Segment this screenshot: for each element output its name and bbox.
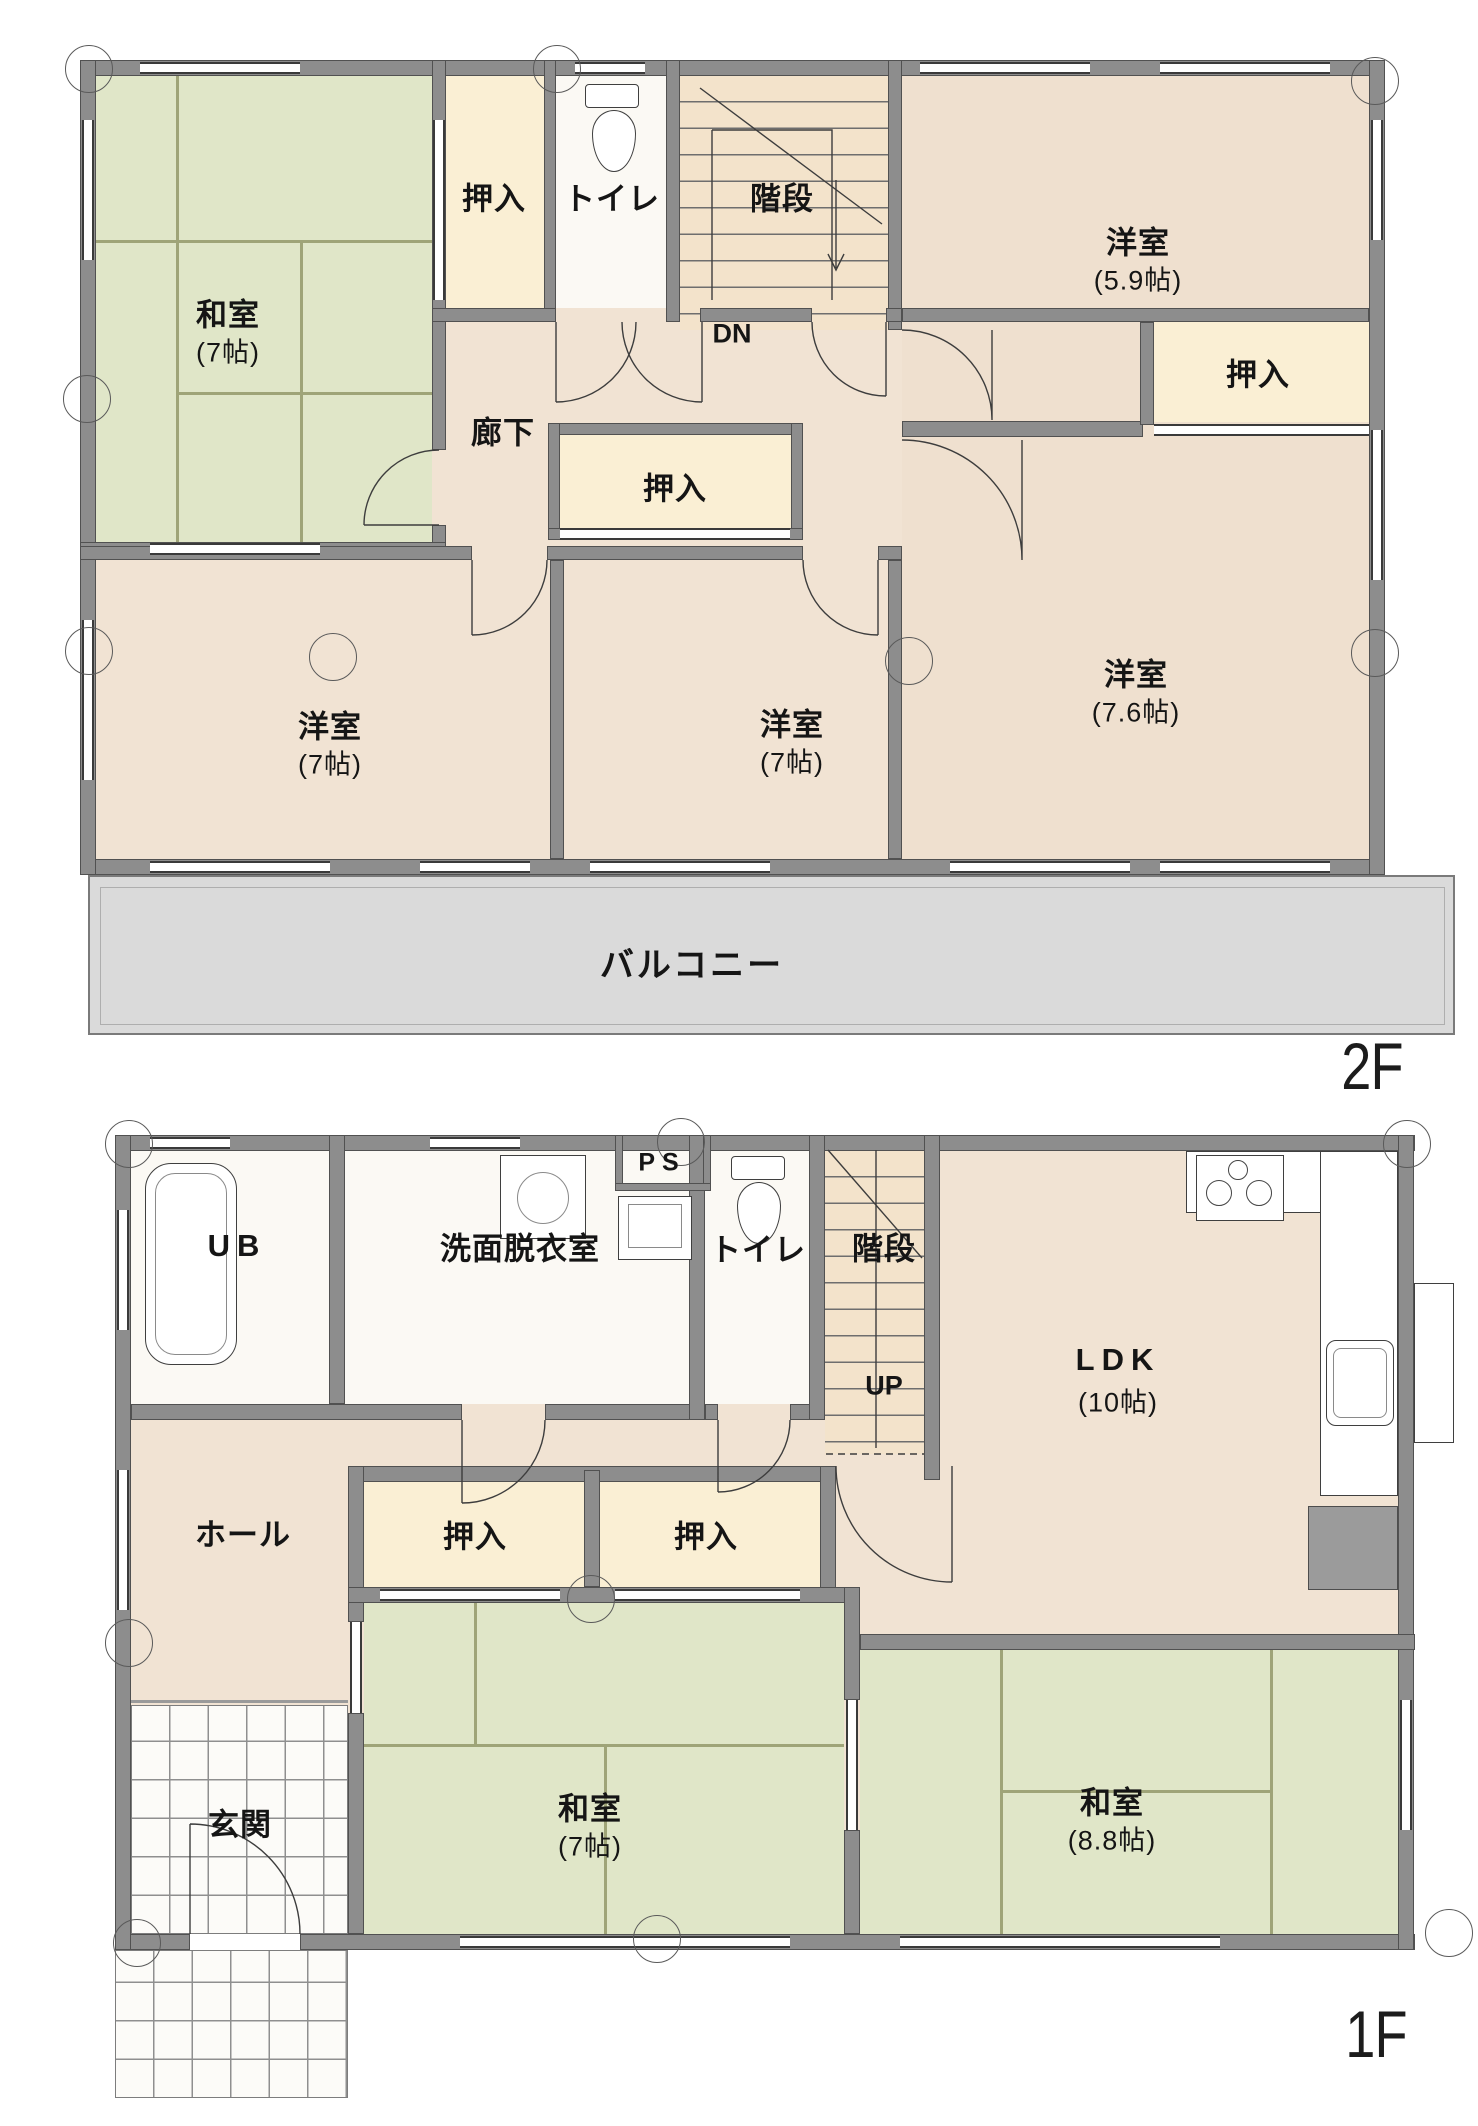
wall-segment bbox=[329, 1135, 345, 1404]
room-label-oshiire-top-2f: 押入 bbox=[462, 174, 526, 219]
corner-mark bbox=[65, 627, 113, 675]
toilet-icon bbox=[585, 84, 639, 108]
corner-mark bbox=[633, 1915, 681, 1963]
room-size-yoshitsu7a-2f: (7帖) bbox=[298, 743, 362, 782]
room-size-washitsu7-1f: (7帖) bbox=[558, 1825, 622, 1864]
window-marker bbox=[920, 62, 1090, 74]
wall-segment bbox=[544, 60, 556, 322]
room-label-yoshitsu7a-2f: 洋室 bbox=[298, 702, 362, 747]
wall-segment bbox=[1140, 322, 1154, 425]
wall-segment bbox=[348, 1713, 364, 1934]
corner-mark bbox=[1351, 629, 1399, 677]
room-label-yoshitsu76-2f: 洋室 bbox=[1104, 650, 1168, 695]
window-marker bbox=[150, 1137, 230, 1149]
window-marker bbox=[1400, 1700, 1412, 1830]
room-stairs-1f bbox=[825, 1151, 924, 1454]
window-marker bbox=[590, 861, 770, 873]
floor-tag-2f: 2F bbox=[1341, 1028, 1403, 1104]
corner-mark bbox=[885, 637, 933, 685]
window-marker bbox=[117, 1470, 129, 1610]
room-label-yoshitsu7b-2f: 洋室 bbox=[760, 700, 824, 745]
genkan-step-line bbox=[131, 1700, 348, 1703]
bathtub-inner bbox=[155, 1173, 227, 1355]
room-washitsu7-2f bbox=[96, 76, 432, 542]
window-marker bbox=[1371, 120, 1383, 240]
wall-segment bbox=[548, 423, 560, 540]
wall-segment bbox=[115, 1135, 1415, 1151]
window-marker bbox=[460, 1936, 790, 1948]
wall-segment bbox=[809, 1135, 825, 1420]
room-label-ldk-1f: LDK bbox=[1076, 1342, 1161, 1378]
tatami-line bbox=[176, 392, 432, 395]
room-size-yoshitsu59-2f: (5.9帖) bbox=[1094, 259, 1183, 298]
room-size-yoshitsu76-2f: (7.6帖) bbox=[1092, 691, 1181, 730]
window-marker bbox=[117, 1210, 129, 1330]
sliding-door-marker bbox=[150, 543, 320, 555]
kitchen-counter bbox=[1320, 1151, 1398, 1496]
tatami-line bbox=[176, 76, 179, 542]
wall-segment bbox=[547, 546, 803, 560]
balcony-label: バルコニー bbox=[600, 938, 784, 987]
corner-mark bbox=[65, 45, 113, 93]
stairs-direction-1f: UP bbox=[865, 1371, 903, 1402]
wall-segment bbox=[131, 1404, 462, 1420]
corner-mark bbox=[105, 1120, 153, 1168]
kitchen-sink-inner bbox=[1333, 1348, 1387, 1418]
corner-mark bbox=[533, 45, 581, 93]
tatami-line bbox=[96, 240, 432, 243]
wall-segment bbox=[844, 1830, 860, 1934]
corner-mark bbox=[309, 633, 357, 681]
room-size-yoshitsu7b-2f: (7帖) bbox=[760, 741, 824, 780]
floorplan-canvas: 和室 (7帖) 押入 トイレ 階段 DN 廊下 押入 洋室 (5.9帖) 押入 … bbox=[0, 0, 1478, 2126]
room-label-oshiire-right-1f: 押入 bbox=[674, 1512, 738, 1557]
window-marker bbox=[430, 1137, 520, 1149]
room-label-genkan-1f: 玄関 bbox=[208, 1800, 272, 1845]
corner-mark bbox=[63, 375, 111, 423]
room-label-washitsu88-1f: 和室 bbox=[1080, 1778, 1144, 1823]
wall-segment bbox=[902, 308, 1369, 322]
wall-segment bbox=[888, 560, 902, 859]
washer-drum bbox=[517, 1172, 569, 1224]
window-marker bbox=[950, 861, 1130, 873]
sliding-door-marker bbox=[380, 1589, 560, 1601]
window-marker bbox=[1371, 430, 1383, 580]
sliding-door-marker bbox=[1154, 424, 1369, 436]
window-marker bbox=[140, 62, 300, 74]
wall-segment bbox=[545, 1404, 705, 1420]
wall-segment bbox=[860, 1634, 1415, 1650]
sliding-door-marker bbox=[846, 1700, 858, 1830]
stove-burner bbox=[1228, 1160, 1248, 1180]
tatami-line bbox=[300, 240, 303, 542]
window-marker bbox=[150, 861, 330, 873]
room-label-senmen-1f: 洗面脱衣室 bbox=[440, 1224, 600, 1269]
stairs-direction-2f: DN bbox=[713, 319, 752, 350]
bay-window bbox=[1414, 1283, 1454, 1443]
wall-segment bbox=[924, 1135, 940, 1480]
tatami-line bbox=[474, 1603, 477, 1744]
room-label-oshiire-mid-2f: 押入 bbox=[643, 464, 707, 509]
corner-mark bbox=[105, 1619, 153, 1667]
room-label-ub-1f: UB bbox=[208, 1228, 267, 1264]
room-label-washitsu7-1f: 和室 bbox=[558, 1784, 622, 1829]
wall-segment bbox=[584, 1470, 600, 1587]
window-marker bbox=[420, 861, 530, 873]
wall-segment bbox=[844, 1587, 860, 1700]
room-label-oshiire-right-2f: 押入 bbox=[1226, 350, 1290, 395]
room-size-ldk-1f: (10帖) bbox=[1078, 1381, 1158, 1420]
toilet-icon bbox=[731, 1156, 785, 1180]
window-marker bbox=[1160, 861, 1330, 873]
stove-burner bbox=[1246, 1180, 1272, 1206]
stove-burner bbox=[1206, 1180, 1232, 1206]
wall-segment bbox=[878, 546, 902, 560]
sliding-door-marker bbox=[350, 1622, 362, 1713]
room-label-hall-1f: ホール bbox=[195, 1510, 291, 1555]
window-marker bbox=[575, 62, 645, 74]
wall-segment bbox=[705, 1404, 718, 1420]
wall-segment bbox=[820, 1466, 836, 1603]
room-label-toilet-2f: トイレ bbox=[564, 174, 660, 219]
wall-segment bbox=[902, 421, 1143, 437]
corner-mark bbox=[1383, 1120, 1431, 1168]
room-label-rouka-2f: 廊下 bbox=[471, 408, 535, 453]
wall-segment bbox=[432, 308, 556, 322]
sliding-door-marker bbox=[615, 1589, 800, 1601]
vanity-sink-inner bbox=[628, 1204, 682, 1248]
room-label-stairs-1f: 階段 bbox=[852, 1224, 916, 1269]
room-label-washitsu7-2f: 和室 bbox=[196, 290, 260, 335]
window-marker bbox=[82, 120, 94, 260]
refrigerator-icon bbox=[1308, 1506, 1398, 1590]
wall-segment bbox=[886, 308, 902, 322]
window-marker bbox=[1160, 62, 1330, 74]
wall-segment bbox=[550, 560, 564, 859]
corner-mark bbox=[1425, 1909, 1473, 1957]
porch-tiles bbox=[115, 1950, 348, 2098]
wall-segment bbox=[791, 423, 803, 540]
wall-segment bbox=[615, 1183, 711, 1191]
room-label-oshiire-left-1f: 押入 bbox=[443, 1512, 507, 1557]
room-label-stairs-2f: 階段 bbox=[750, 174, 814, 219]
room-size-washitsu7-2f: (7帖) bbox=[196, 331, 260, 370]
wall-segment bbox=[666, 60, 680, 322]
corner-mark bbox=[1351, 57, 1399, 105]
room-label-ps-1f: PS bbox=[638, 1149, 685, 1178]
floor-tag-1f: 1F bbox=[1345, 1996, 1407, 2072]
sliding-door-marker bbox=[433, 120, 445, 300]
room-label-yoshitsu59-2f: 洋室 bbox=[1106, 218, 1170, 263]
room-size-washitsu88-1f: (8.8帖) bbox=[1068, 1819, 1157, 1858]
window-marker bbox=[900, 1936, 1220, 1948]
corner-mark bbox=[113, 1919, 161, 1967]
sliding-door-marker bbox=[560, 528, 790, 540]
room-label-toilet-1f: トイレ bbox=[710, 1225, 806, 1270]
wall-segment bbox=[548, 423, 803, 435]
corner-mark bbox=[567, 1575, 615, 1623]
wall-segment bbox=[888, 60, 902, 330]
